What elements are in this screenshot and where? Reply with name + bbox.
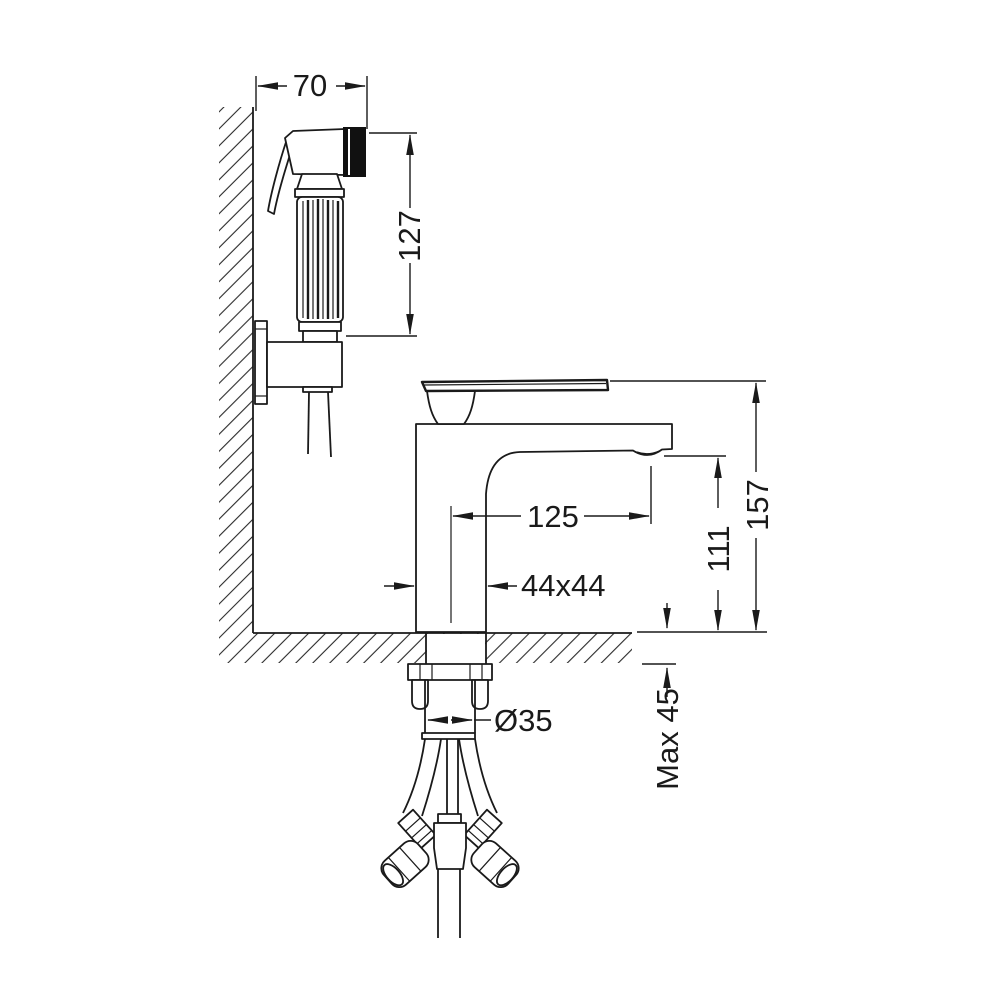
sprayer-neck <box>297 174 342 189</box>
bracket-wall-plate <box>255 321 267 404</box>
wall-hatch <box>219 107 253 663</box>
spout-height-label: 111 <box>701 525 736 572</box>
sprayer-hose <box>308 392 331 457</box>
mounting-hole-gap <box>427 634 485 663</box>
dim-spout-height: 111 <box>664 456 736 630</box>
mixer-lever-handle <box>422 380 608 391</box>
dim-bracket-width: 70 <box>256 68 367 129</box>
hand-sprayer <box>268 127 366 342</box>
sprayer-height-label: 127 <box>392 210 427 262</box>
overall-height-label: 157 <box>740 479 775 531</box>
dim-overall-height: 157 <box>610 381 775 632</box>
technical-drawing-canvas: 70 127 125 44x44 111 157 Ø35 <box>0 0 1000 1000</box>
supply-hoses <box>377 739 523 938</box>
bracket-holder <box>267 342 342 387</box>
max-thickness-label: Max 45 <box>650 688 685 790</box>
rod-cap <box>438 814 461 823</box>
dim-max-thickness: Max 45 <box>642 603 685 790</box>
center-rod <box>434 739 466 938</box>
sprayer-neck-ring <box>295 189 344 197</box>
sprayer-head <box>285 129 345 175</box>
spray-face <box>343 127 366 177</box>
wall-bracket <box>255 321 342 457</box>
shank-collar <box>422 733 475 739</box>
spout-reach-label: 125 <box>527 499 579 534</box>
bracket-width-label: 70 <box>293 68 327 103</box>
faucet-dimension-drawing: 70 127 125 44x44 111 157 Ø35 <box>0 0 1000 1000</box>
rod-block <box>434 823 466 869</box>
mixer-lever-stem <box>427 391 475 424</box>
sprayer-grip <box>297 197 343 322</box>
hose-collar <box>303 387 332 392</box>
body-section-label: 44x44 <box>521 568 605 603</box>
counter-section <box>253 633 632 663</box>
grip-end-cap <box>299 322 341 331</box>
grip-end-ring <box>303 331 337 342</box>
wall-section <box>219 107 253 663</box>
hole-diameter-label: Ø35 <box>494 703 553 738</box>
